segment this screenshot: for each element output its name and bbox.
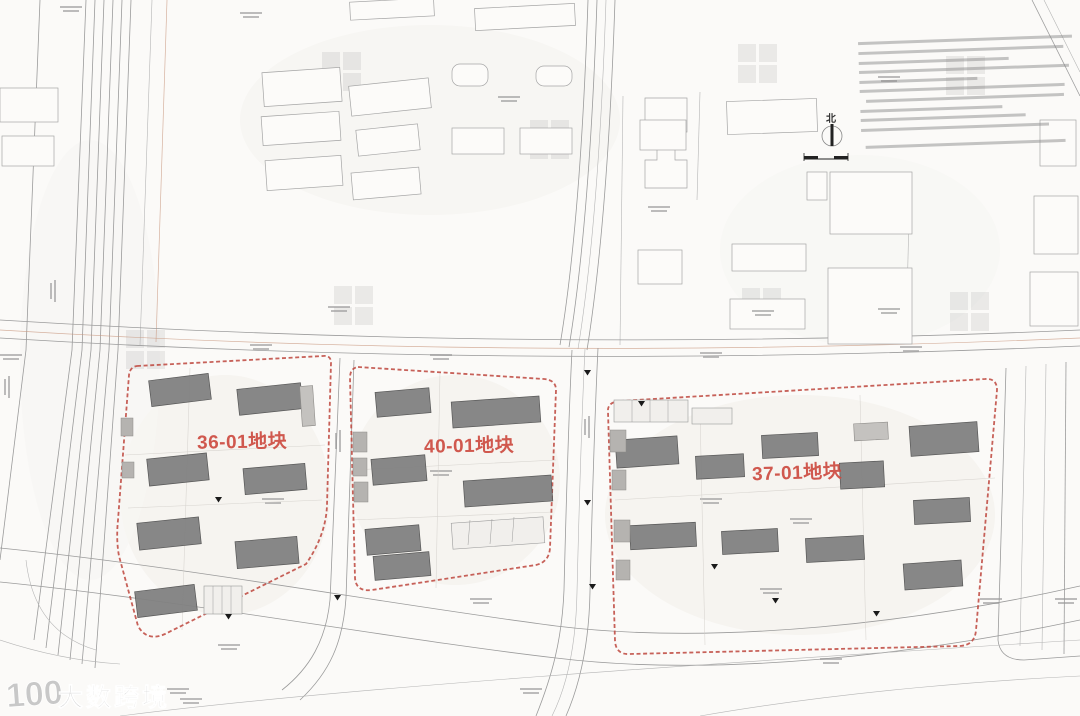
plot-label-36-01: 36-01地块 [197, 429, 288, 454]
parking-rows [614, 400, 688, 422]
brand-watermark: 100 大数跨境 [5, 673, 170, 715]
watermark-brand-text: 大数跨境 [58, 683, 170, 712]
parking-rows [204, 586, 242, 614]
site-plan-drawing: 36-01地块 40-01地块 [0, 0, 1080, 716]
north-arrow-icon: 北 [822, 112, 842, 146]
north-label: 北 [826, 112, 836, 125]
plot-label-40-01: 40-01地块 [424, 433, 515, 458]
site-plan-sheet: 36-01地块 40-01地块 [0, 0, 1080, 716]
watermark-logo: 100 [5, 673, 64, 715]
plot-label-37-01: 37-01地块 [752, 459, 843, 485]
